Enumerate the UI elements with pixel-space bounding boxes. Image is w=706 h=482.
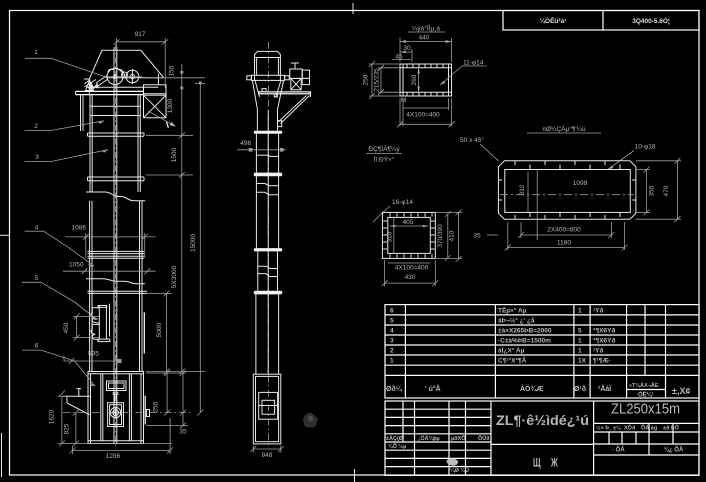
svg-text:' ú°Å: ' ú°Å — [425, 384, 441, 393]
svg-text:µðXÕ: µðXÕ — [451, 435, 466, 442]
svg-text:ÕÛð: ÕÛð — [478, 435, 490, 442]
svg-text:²ÅáÏ: ²ÅáÏ — [598, 384, 612, 393]
svg-text:430: 430 — [405, 274, 416, 281]
svg-text:50 x 45°: 50 x 45° — [460, 136, 484, 144]
svg-text:±ÅÇ(Ø: ±ÅÇ(Ø — [386, 435, 404, 442]
svg-text:440: 440 — [419, 35, 430, 42]
svg-text:5X3000: 5X3000 — [171, 265, 178, 288]
svg-text:ÀÖ¾Æ: ÀÖ¾Æ — [520, 384, 543, 393]
svg-text:¸,ÖÄ¾þµ: ¸,ÖÄ¾þµ — [417, 435, 440, 442]
svg-text:30: 30 — [403, 45, 411, 52]
svg-text:1: 1 — [578, 338, 582, 345]
svg-text:Íî:ÐÝ×°: Íî:ÐÝ×° — [374, 155, 395, 164]
svg-text:ÐÇ¶ÏÀ¶¼ý: ÐÇ¶ÏÀ¶¼ý — [368, 144, 400, 153]
svg-text:35: 35 — [473, 233, 481, 240]
svg-text:«T¼ÀX¬ÅE: «T¼ÀX¬ÅE — [629, 382, 659, 389]
svg-text:5: 5 — [35, 275, 39, 282]
svg-text:1300: 1300 — [167, 98, 174, 113]
svg-text:±à×X265ÞB=2000: ±à×X265ÞB=2000 — [498, 328, 552, 335]
svg-text:1620: 1620 — [49, 409, 56, 424]
svg-text:¶¹¶Æ·: ¶¹¶Æ· — [593, 358, 611, 365]
svg-text:XÕð: XÕð — [624, 425, 636, 432]
svg-text:1180: 1180 — [557, 240, 571, 247]
svg-text:Ø¹ð: Ø¹ð — [574, 385, 586, 393]
svg-text:260: 260 — [411, 74, 418, 85]
svg-text:¼Õ ½µ: ¼Õ ½µ — [388, 443, 406, 450]
svg-text:±,X¢: ±,X¢ — [672, 386, 690, 396]
svg-text:· ÕÅ: · ÕÅ — [612, 447, 625, 454]
svg-text:¼¿ ÕÅ: ¼¿ ÕÅ — [664, 447, 684, 454]
svg-text:6: 6 — [390, 308, 394, 315]
svg-text:215/235: 215/235 — [374, 68, 381, 92]
svg-text:2: 2 — [34, 123, 38, 130]
svg-text:¼Ø ¼Ü: ¼Ø ¼Ü — [450, 467, 469, 474]
svg-text:595: 595 — [88, 351, 99, 358]
svg-text:150: 150 — [169, 65, 176, 76]
svg-text:948: 948 — [262, 452, 273, 459]
svg-text:16-φ14: 16-φ14 — [392, 199, 413, 206]
svg-text:¼ÿó°ÏÌµ¸á: ¼ÿó°ÏÌµ¸á — [412, 24, 440, 33]
svg-text:°¶X6Yð: °¶X6Yð — [593, 337, 616, 345]
svg-text:405: 405 — [403, 219, 414, 226]
svg-text:1: 1 — [578, 308, 582, 315]
svg-text:1: 1 — [34, 49, 38, 56]
svg-text:250: 250 — [153, 401, 160, 412]
svg-text:¹Yð: ¹Yð — [593, 347, 604, 355]
svg-text:Øð¼: Øð¼ — [386, 385, 403, 393]
svg-text:¤Ø¼ÇÀµ°¶'¼ú: ¤Ø¼ÇÀµ°¶'¼ú — [542, 124, 586, 133]
svg-text:470: 470 — [663, 185, 670, 196]
svg-text:5: 5 — [578, 328, 582, 335]
svg-text:1286: 1286 — [106, 453, 121, 460]
svg-text:917: 917 — [135, 31, 146, 38]
svg-text:10-φ18: 10-φ18 — [635, 144, 656, 151]
svg-text:°¶X6Yð: °¶X6Yð — [593, 327, 616, 335]
svg-text:350: 350 — [649, 185, 656, 196]
svg-text:6: 6 — [35, 343, 39, 350]
svg-text:1086: 1086 — [72, 225, 87, 232]
svg-text:312: 312 — [519, 184, 526, 195]
svg-text:±¼: ±¼ — [613, 425, 621, 432]
svg-text:5: 5 — [390, 318, 394, 325]
svg-text:1X: 1X — [578, 358, 587, 365]
svg-text:4: 4 — [390, 328, 394, 335]
svg-text:Щ: Щ — [533, 457, 541, 470]
svg-text:¼ÒÊü²à¹: ¼ÒÊü²à¹ — [540, 16, 567, 25]
svg-text:3Q400-5.6Ó¦: 3Q400-5.6Ó¦ — [632, 16, 670, 25]
svg-text:·C±à%ÞB=1500m: ·C±à%ÞB=1500m — [498, 338, 551, 345]
svg-text:TÊµ×° Aµ: TÊµ×° Aµ — [498, 306, 527, 315]
svg-text:310: 310 — [387, 231, 394, 242]
svg-text:1: 1 — [578, 348, 582, 355]
svg-text:2X400=800: 2X400=800 — [547, 227, 581, 234]
svg-text:1500: 1500 — [171, 147, 178, 162]
svg-text:5000: 5000 — [156, 322, 163, 337]
svg-text:825: 825 — [64, 423, 71, 434]
svg-text:370/390: 370/390 — [437, 224, 444, 248]
svg-text:1: 1 — [390, 358, 394, 365]
svg-text:ÕÅ àg: ÕÅ àg — [641, 425, 657, 432]
svg-text:4X100=400: 4X100=400 — [395, 265, 429, 272]
svg-text:250: 250 — [363, 74, 370, 85]
svg-text:410: 410 — [449, 230, 456, 241]
svg-text:3: 3 — [35, 154, 39, 161]
svg-text:496: 496 — [240, 140, 251, 147]
svg-text:C¶¹°X°¶Å: C¶¹°X°¶Å — [498, 356, 527, 365]
svg-text:áÏ¿X° Aµ: áÏ¿X° Aµ — [498, 347, 525, 355]
svg-text:1098: 1098 — [573, 180, 588, 187]
svg-text:15000: 15000 — [190, 234, 197, 252]
svg-text:2: 2 — [390, 348, 394, 355]
svg-text:ÓÈ¼¹: ÓÈ¼¹ — [638, 391, 654, 399]
svg-text:4: 4 — [35, 225, 39, 232]
svg-text:±ð ÞÕ: ±ð ÞÕ — [663, 425, 680, 432]
svg-text:ZL250x15m: ZL250x15m — [611, 401, 680, 418]
svg-text:½× Þ¸: ½× Þ¸ — [596, 425, 611, 432]
svg-text:3: 3 — [390, 338, 394, 345]
svg-text:Ж: Ж — [550, 457, 558, 470]
svg-text:4X100=400: 4X100=400 — [406, 112, 440, 119]
svg-text:¹Yð: ¹Yð — [593, 307, 604, 315]
svg-text:áÞ¬½° ¿' ¿å: áÞ¬½° ¿' ¿å — [498, 317, 535, 325]
svg-text:450: 450 — [63, 322, 70, 333]
svg-text:M: M — [401, 97, 406, 104]
svg-text:1050: 1050 — [69, 262, 84, 269]
svg-text:ZL¶·ê½ìdé¿¹ú: ZL¶·ê½ìdé¿¹ú — [496, 413, 589, 428]
svg-text:35: 35 — [179, 429, 187, 436]
svg-text:11-φ14: 11-φ14 — [463, 60, 484, 67]
